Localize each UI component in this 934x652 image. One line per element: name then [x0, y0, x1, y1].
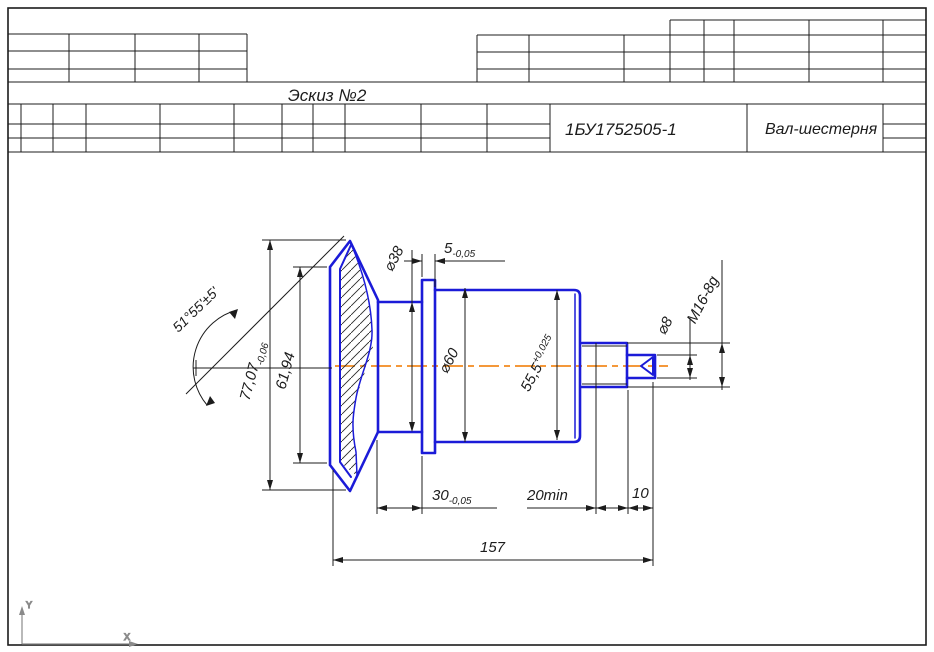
dim-5-text: 5-0,05: [444, 240, 476, 260]
angle-dimension: [186, 236, 344, 405]
part-name: Вал-шестерня: [765, 121, 878, 138]
dim-d60-text: ⌀60: [435, 345, 462, 376]
ucs-y-arrow: [19, 606, 25, 615]
doc-number: 1БУ1752505-1: [565, 120, 677, 139]
neck-d38: [378, 302, 422, 432]
dim-157-text: 157: [480, 539, 506, 556]
dim-10-text: 10: [632, 485, 649, 502]
dim-61-text: 61,94: [273, 351, 299, 392]
dim-20-text: 20min: [526, 487, 568, 504]
ucs-x-label: X: [124, 632, 130, 642]
sketch-title: Эскиз №2: [288, 86, 367, 105]
dim-m16-text: M16-8g: [684, 273, 723, 326]
dim-30-text: 30-0,05: [432, 487, 472, 507]
dim-d38-text: ⌀38: [380, 243, 407, 274]
cad-canvas: Эскиз №2 1БУ1752505-1 Вал-шестерня: [0, 0, 934, 652]
thread-section: [582, 343, 627, 387]
dim-77-text: 77,07-0,06: [237, 339, 272, 403]
ucs-x-arrow: [129, 641, 138, 647]
ucs-y-label: Y: [26, 600, 32, 610]
dim-d8-text: ⌀8: [653, 314, 676, 338]
drawing-sheet: Эскиз №2 1БУ1752505-1 Вал-шестерня: [0, 0, 934, 652]
dimension-texts: 51°55'±5' 77,07-0,06 61,94 ⌀38 5-0,05 ⌀6…: [169, 240, 723, 556]
dim-77: [262, 240, 346, 490]
dim-55-text: 55,5+0,025: [517, 333, 561, 395]
dim-61: [293, 267, 327, 463]
dimension-lines: [186, 236, 730, 566]
ucs-icon: Y X: [19, 600, 138, 647]
bottom-extension-lines: [333, 343, 653, 566]
angle-text: 51°55'±5': [169, 283, 222, 335]
